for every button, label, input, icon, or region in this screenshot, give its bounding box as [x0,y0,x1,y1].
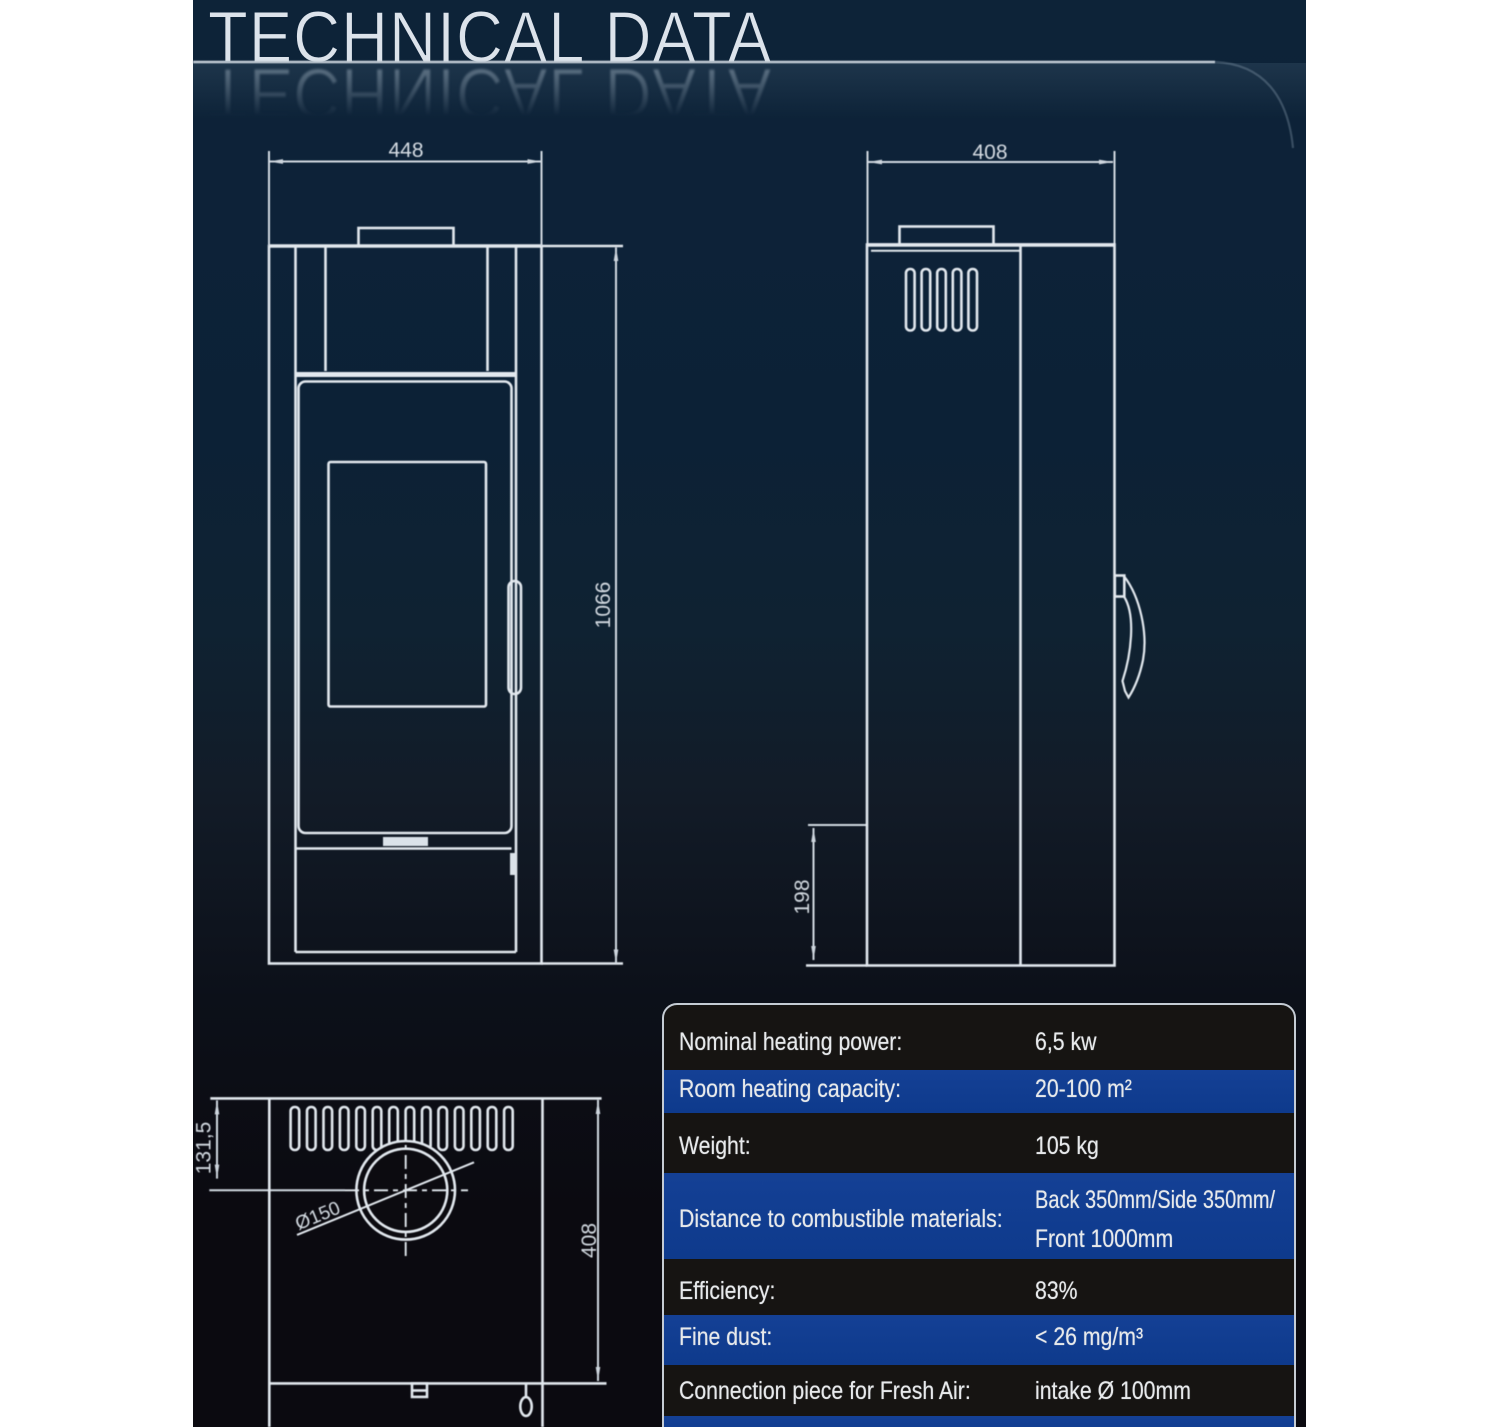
svg-text:408: 408 [578,1223,601,1258]
svg-text:448: 448 [388,139,423,162]
svg-text:198: 198 [791,879,814,914]
svg-text:408: 408 [972,141,1007,164]
svg-text:1066: 1066 [592,582,615,629]
svg-text:131,5: 131,5 [193,1122,216,1175]
svg-text:Ø150: Ø150 [292,1198,343,1235]
